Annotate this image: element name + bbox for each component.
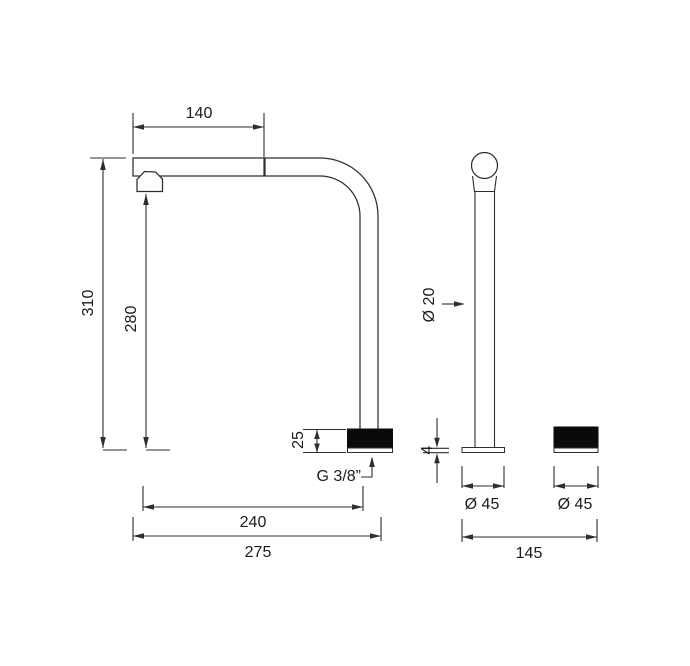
control-escutcheon-view: [554, 427, 598, 453]
arrowhead-up: [314, 430, 320, 439]
knob-collar-right: [495, 176, 497, 192]
dim-label-25: 25: [290, 431, 307, 449]
dim-label-275: 275: [245, 544, 272, 561]
dim-label-140: 140: [186, 105, 213, 122]
arrowhead-right: [586, 534, 597, 540]
dim-label-240: 240: [240, 514, 267, 531]
arrowhead-right: [587, 483, 598, 489]
arrowhead-right: [253, 124, 264, 130]
arrowhead-up: [369, 457, 375, 468]
control-escutcheon: [554, 427, 598, 448]
arrowhead-up: [100, 159, 106, 170]
spout-side-view: [133, 158, 393, 453]
thread-label: G 3/8”: [317, 468, 361, 485]
knob-collar-left: [473, 176, 475, 192]
arrowhead-left: [462, 483, 473, 489]
control-knob: [472, 153, 498, 179]
control-side-view: [462, 153, 505, 453]
control-base-plate: [462, 448, 505, 453]
arrowhead-right: [493, 483, 504, 489]
control-escutcheon-ring: [554, 448, 598, 453]
arrowhead-down: [143, 437, 149, 448]
dim-label-280: 280: [123, 306, 140, 333]
dim-escutcheon-diameter: Ø 45: [554, 466, 598, 513]
arrowhead-left: [554, 483, 565, 489]
spout-base-ring: [348, 448, 393, 453]
dim-base-height: 25: [290, 430, 346, 453]
dim-reach-to-axis: 240: [143, 486, 363, 531]
dim-control-base-diameter: Ø 45: [462, 466, 504, 513]
arrowhead-right: [370, 533, 381, 539]
leader-line: [361, 458, 372, 477]
arrowhead-left: [133, 124, 144, 130]
dim-hole-spacing: 145: [462, 519, 597, 562]
arrowhead-right: [454, 301, 465, 307]
arrowhead-down: [100, 437, 106, 448]
arrowhead-left: [133, 533, 144, 539]
arrowhead-left: [143, 504, 154, 510]
dim-top-reach: 140: [133, 105, 264, 157]
dim-label-d20: Ø 20: [421, 288, 438, 323]
spout-base-escutcheon: [348, 429, 393, 448]
arrowhead-up: [143, 194, 149, 205]
thread-callout: G 3/8”: [317, 457, 375, 486]
dim-label-d45-right: Ø 45: [558, 496, 593, 513]
arrowhead-down: [314, 444, 320, 453]
dim-plate-thickness: 4: [419, 418, 449, 483]
dim-label-4: 4: [419, 445, 436, 454]
dim-column-diameter: Ø 20: [421, 288, 465, 323]
spout-body-outline: [133, 158, 378, 430]
arrowhead-right: [352, 504, 363, 510]
dim-label-310: 310: [80, 290, 97, 317]
dim-total-height: 310: [80, 158, 127, 450]
technical-drawing: 140 310 280 25: [0, 0, 690, 666]
dim-label-145: 145: [516, 545, 543, 562]
drawing-canvas: 140 310 280 25: [0, 0, 690, 666]
arrowhead-left: [462, 534, 473, 540]
dim-clearance-height: 280: [123, 194, 170, 450]
dim-label-d45-left: Ø 45: [465, 496, 500, 513]
